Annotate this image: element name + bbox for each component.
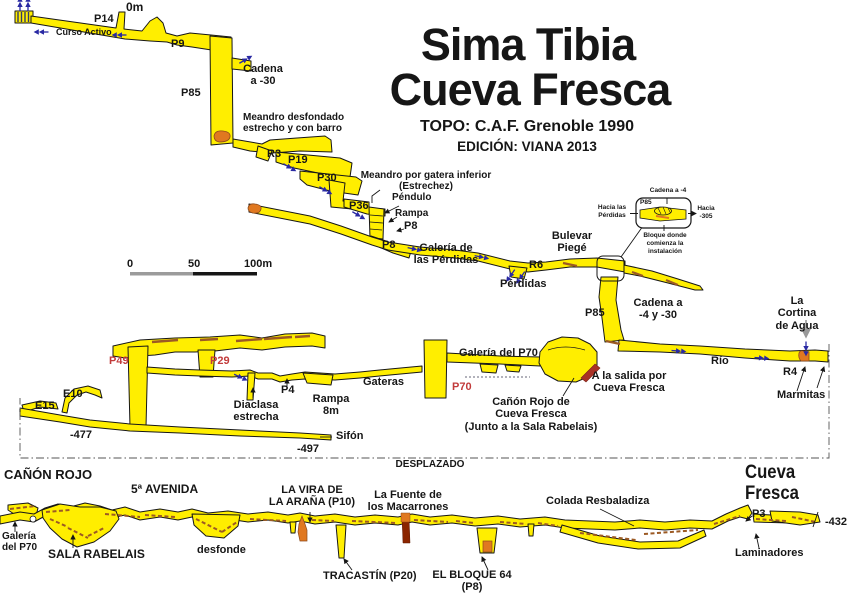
scale-label-50: 50 bbox=[188, 258, 200, 270]
label-p36: P36 bbox=[349, 200, 369, 212]
cave-survey-page: 0m P14 Curso Activo P9 Cadena a -30 P85 … bbox=[0, 0, 848, 600]
label-fuente-macarrones: La Fuente de los Macarrones bbox=[368, 489, 449, 514]
label-laminadores: Laminadores bbox=[735, 547, 803, 559]
label-diaclasa: Diaclasa estrecha bbox=[233, 399, 278, 424]
label-bulevar-piege: Bulevar Piegé bbox=[552, 230, 592, 255]
label-cueva-fresca-big: Cueva Fresca bbox=[745, 462, 836, 505]
p85-shaft bbox=[210, 36, 233, 145]
label-pendulo: Péndulo bbox=[392, 192, 431, 203]
label-cadena-a-30: Cadena a -30 bbox=[243, 63, 283, 88]
label-rio: Río bbox=[711, 355, 729, 367]
arrow-marmitas-a bbox=[797, 367, 805, 391]
scale-bar-right-half bbox=[193, 272, 257, 276]
label-tracastin: TRACASTÍN (P20) bbox=[323, 570, 417, 582]
label-sala-rabelais: SALA RABELAIS bbox=[48, 548, 145, 561]
bloque64-orange-block bbox=[483, 541, 492, 552]
label-r4: R4 bbox=[783, 366, 797, 378]
label-cortina: La Cortina de Agua bbox=[772, 295, 823, 332]
subtitle-edition: EDICIÓN: VIANA 2013 bbox=[457, 139, 597, 154]
scale-bar-left-half bbox=[130, 272, 193, 276]
label-cadena-a-4-30: Cadena a -4 y -30 bbox=[634, 297, 683, 322]
label-e10: E10 bbox=[63, 388, 83, 400]
label-meandro-desfondado: Meandro desfondado estrecho y con barro bbox=[243, 112, 344, 134]
label-p3: P3 bbox=[752, 508, 765, 520]
label-salida-cueva-fresca: A la salida por Cueva Fresca bbox=[592, 370, 667, 395]
label-p70: P70 bbox=[452, 381, 472, 393]
subtitle-topo: TOPO: C.A.F. Grenoble 1990 bbox=[420, 118, 634, 136]
label-sifon: Sifón bbox=[336, 430, 364, 442]
scale-label-0: 0 bbox=[127, 258, 133, 270]
flow-arrow-icon bbox=[17, 0, 22, 12]
label-p14: P14 bbox=[94, 13, 114, 25]
label-p49: P49 bbox=[109, 355, 129, 367]
inset-leader-line bbox=[621, 226, 643, 257]
p70-column bbox=[424, 340, 447, 398]
label-rampa-8m: Rampa 8m bbox=[313, 393, 350, 418]
fuente-orange-top bbox=[401, 513, 410, 522]
label-depth-432: -432 bbox=[825, 516, 847, 528]
bulevar-diagonal-stub bbox=[624, 265, 703, 290]
label-canon-rojo: CAÑÓN ROJO bbox=[4, 468, 92, 483]
diaclasa-slot bbox=[247, 373, 255, 400]
scale-label-100m: 100m bbox=[244, 258, 272, 270]
label-p8-a: P8 bbox=[404, 220, 417, 232]
p70-pocket-2 bbox=[505, 365, 521, 372]
label-p29: P29 bbox=[210, 355, 230, 367]
label-e15: E15 bbox=[35, 400, 55, 412]
arrow-p8a bbox=[397, 229, 404, 231]
label-desfonde: desfonde bbox=[197, 544, 246, 556]
label-rampa: Rampa bbox=[395, 208, 428, 219]
arrow-tracastin bbox=[344, 559, 352, 570]
label-quinta-avenida: 5ª AVENIDA bbox=[131, 483, 198, 496]
label-galeria-p70: Galería del P70 bbox=[459, 347, 538, 359]
label-canon-rojo-cf: Cañón Rojo de Cueva Fresca (Junto a la S… bbox=[465, 396, 598, 433]
label-p4: P4 bbox=[281, 384, 294, 396]
label-depth-477: -477 bbox=[70, 429, 92, 441]
page-title-line2: Cueva Fresca bbox=[390, 67, 671, 112]
p70-pocket-1 bbox=[480, 364, 498, 373]
orange-gallery-start bbox=[248, 204, 261, 213]
label-bloque-64: EL BLOQUE 64 (P8) bbox=[432, 569, 511, 594]
label-desplazado: DESPLAZADO bbox=[396, 459, 465, 470]
label-inset-p85: P85 bbox=[640, 199, 652, 207]
label-p85-upper: P85 bbox=[181, 87, 201, 99]
rampa-8m-pocket bbox=[303, 373, 333, 385]
sala-loop-hole bbox=[30, 516, 36, 522]
desfonde-chamber bbox=[192, 514, 240, 538]
tooth-2 bbox=[528, 524, 534, 536]
label-vira-arana: LA VIRA DE LA ARAÑA (P10) bbox=[269, 484, 355, 509]
label-p85-mid: P85 bbox=[585, 307, 605, 319]
label-p9: P9 bbox=[171, 38, 184, 50]
tracastin-spur bbox=[336, 525, 346, 558]
p49-shaft bbox=[128, 346, 148, 427]
label-r6: R6 bbox=[529, 259, 543, 271]
page-title-line1: Sima Tibia bbox=[421, 22, 635, 67]
label-r3: R3 bbox=[267, 148, 281, 160]
inset-bloque-shape bbox=[655, 207, 672, 215]
label-p8-b: P8 bbox=[382, 239, 395, 251]
label-marmitas: Marmitas bbox=[777, 389, 825, 401]
label-inset-cadena-a-4: Cadena a -4 bbox=[650, 187, 687, 195]
sump-orange-p85 bbox=[214, 131, 230, 142]
label-p19: P19 bbox=[288, 154, 308, 166]
flow-arrow-icon bbox=[25, 0, 30, 12]
label-0m: 0m bbox=[126, 1, 143, 14]
label-galeria-perdidas: Galería de las Pérdidas bbox=[414, 242, 479, 267]
tooth-1 bbox=[290, 522, 296, 533]
label-inset-hacia-perdidas: Hacia las Pérdidas bbox=[598, 204, 626, 220]
arrow-marmitas-b bbox=[817, 367, 824, 388]
label-inset-bloque: Bloque donde comienza la instalación bbox=[643, 232, 686, 255]
scale-bar bbox=[130, 272, 257, 276]
label-galeria-p70-bottom: Galería del P70 bbox=[2, 531, 37, 553]
label-curso-activo: Curso Activo bbox=[56, 27, 112, 37]
flow-arrow-icon bbox=[34, 29, 49, 34]
label-colada: Colada Resbaladiza bbox=[546, 495, 649, 507]
label-p30: P30 bbox=[317, 172, 337, 184]
label-depth-497: -497 bbox=[297, 443, 319, 455]
label-inset-hacia-305: Hacia -305 bbox=[697, 205, 714, 221]
label-perdidas: Pérdidas bbox=[500, 278, 546, 290]
label-meandro-gatera: Meandro por gatera inferior (Estrechez) bbox=[361, 170, 492, 192]
label-gateras: Gateras bbox=[363, 376, 404, 388]
arrow-laminadores bbox=[756, 534, 759, 548]
meandro-chamber bbox=[233, 136, 332, 153]
